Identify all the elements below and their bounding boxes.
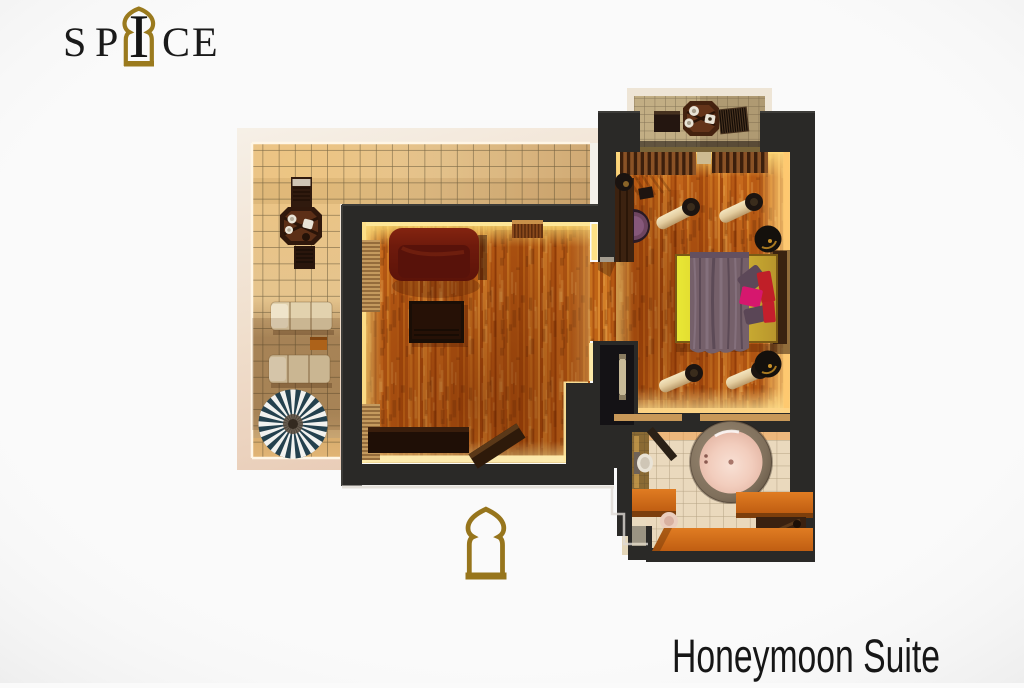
svg-text:P: P [95, 20, 118, 66]
svg-text:I: I [129, 3, 150, 71]
svg-text:E: E [192, 20, 218, 66]
svg-text:Honeymoon Suite: Honeymoon Suite [672, 629, 940, 682]
svg-text:S: S [63, 20, 86, 66]
svg-text:C: C [162, 20, 190, 66]
